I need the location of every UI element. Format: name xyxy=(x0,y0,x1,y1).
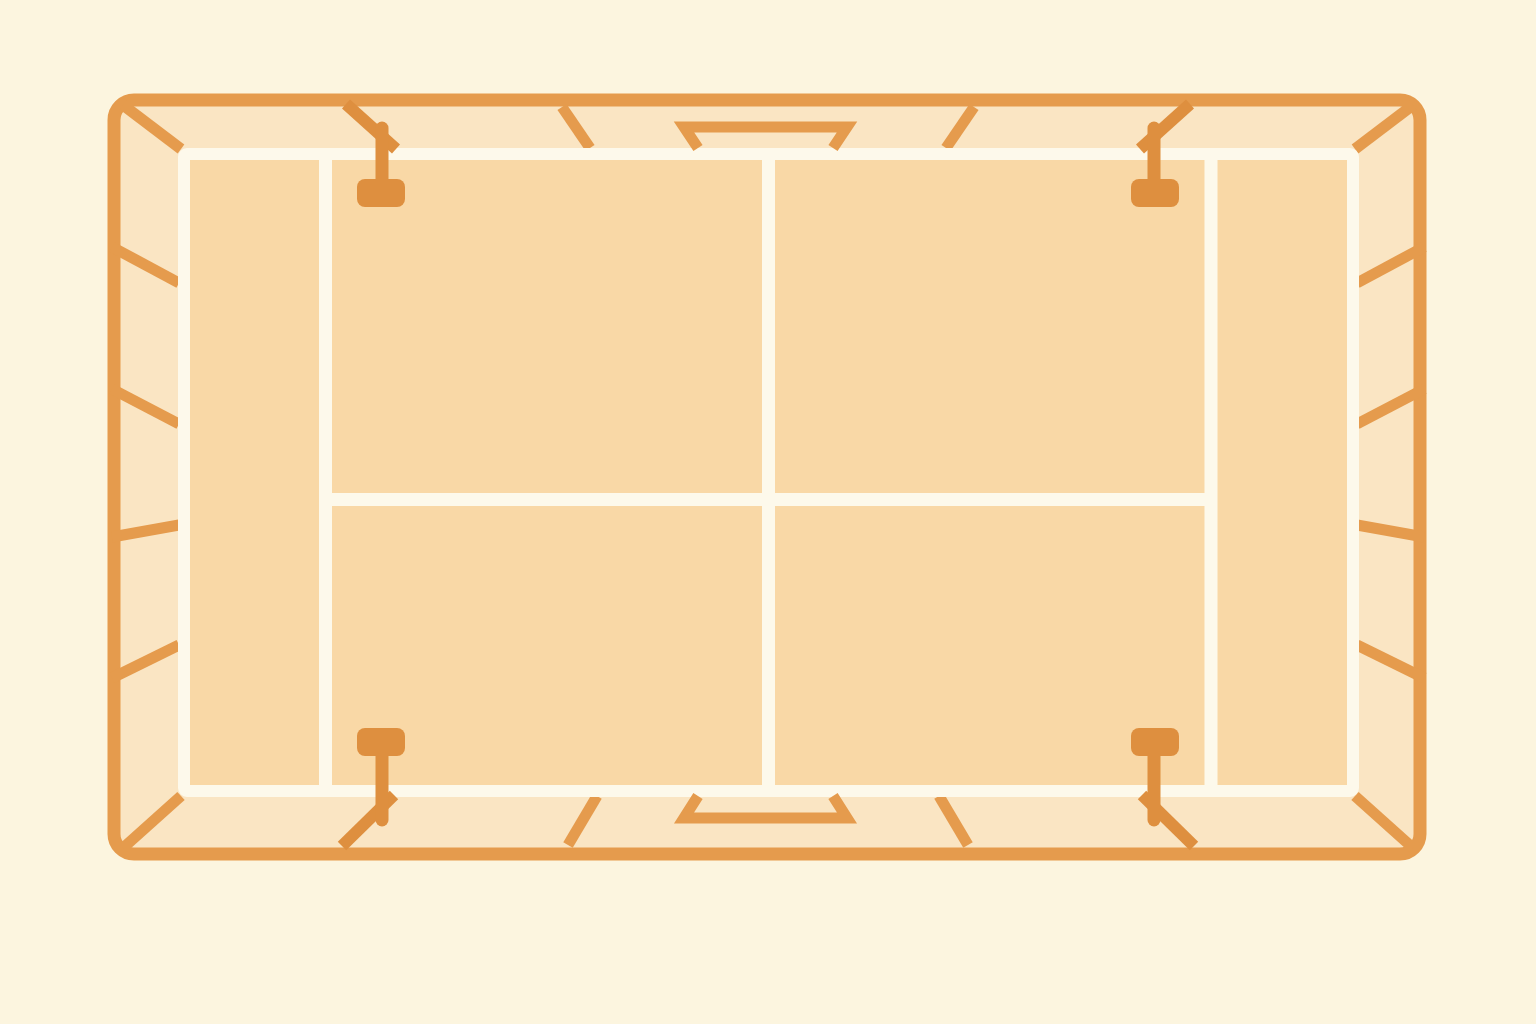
floodlight-bottom-right-head xyxy=(1131,728,1179,756)
stadium-illustration xyxy=(0,0,1536,1024)
floodlight-bottom-left-head xyxy=(357,728,405,756)
floodlight-top-right-head xyxy=(1131,179,1179,207)
stadium-svg xyxy=(0,0,1536,1024)
floodlight-top-left-head xyxy=(357,179,405,207)
